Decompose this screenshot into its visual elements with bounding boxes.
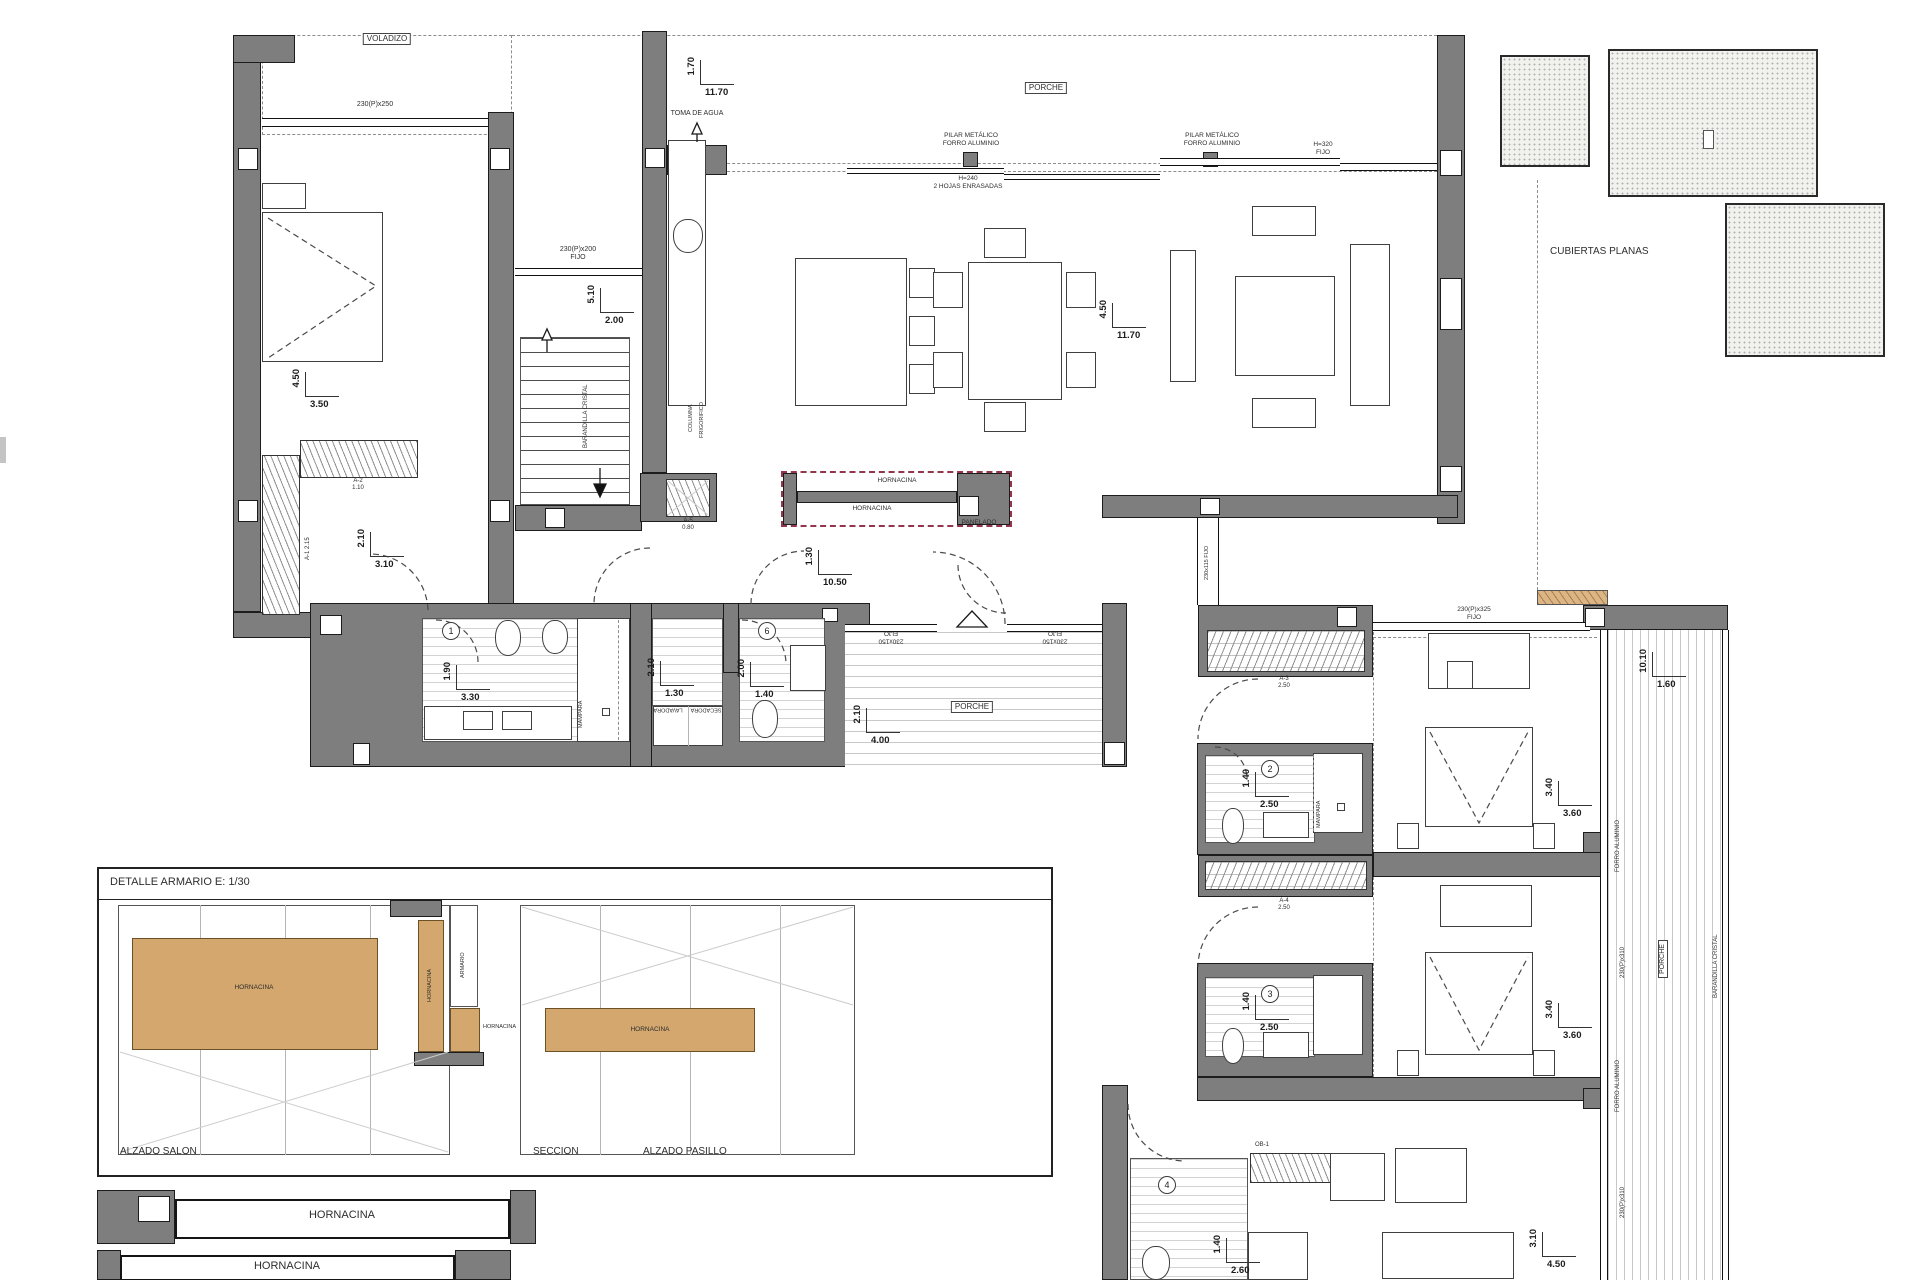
label-win-230p250: 230(P)x250 [357, 101, 393, 109]
label-hornacina-seccion-v: HORNACINA [427, 969, 434, 1002]
label-toma-de-agua: TOMA DE AGUA [671, 110, 724, 118]
room-number-2: 2 [1261, 760, 1279, 778]
label-win-h320: H=320 FIJO [1313, 141, 1332, 157]
label-pilar-metalico-2: PILAR METÁLICO FORRO ALUMINIO [1184, 132, 1240, 148]
label-forro-aluminio-2: FORRO ALUMINIO [1615, 1060, 1622, 1112]
dimension: 3.403.60 [1558, 1003, 1600, 1041]
label-frigorifico: FRIGORIFICO [699, 402, 706, 438]
dimension: 2.104.00 [866, 708, 908, 746]
label-detalle-titulo: DETALLE ARMARIO E: 1/30 [110, 876, 250, 889]
label-hornacina-plan-top: HORNACINA [877, 477, 916, 485]
label-hornacina-plan-bot: HORNACINA [852, 505, 891, 513]
dimension: 10.101.60 [1652, 652, 1694, 690]
label-armario-a1: A-1 2.15 [305, 537, 312, 560]
label-columna: COLUMNA [688, 404, 695, 432]
label-win-230x150-b: 230x150 FIJO [1043, 629, 1068, 645]
label-lavadora: LAVADORA [653, 706, 682, 713]
label-pilar-metalico-1: PILAR METÁLICO FORRO ALUMINIO [943, 132, 999, 148]
label-hornacina-bar2: HORNACINA [254, 1260, 320, 1273]
dimension: 1.3010.50 [818, 550, 860, 588]
label-win-230x115: 230x115 FIJO [1204, 546, 1211, 580]
dimension: 3.403.60 [1558, 781, 1600, 819]
label-panelado: PANELADO [962, 519, 997, 527]
label-hornacina-bar1: HORNACINA [309, 1209, 375, 1222]
label-hornacina-pasillo: HORNACINA [630, 1026, 669, 1034]
label-win-h240: H=240 2 HOJAS ENRASADAS [934, 175, 1003, 191]
label-win-230p325: 230(P)x325 FIJO [1457, 606, 1491, 622]
label-forro-aluminio-1: FORRO ALUMINIO [1615, 820, 1622, 872]
room-number-1: 1 [442, 622, 460, 640]
label-porche-top: PORCHE [1025, 82, 1067, 94]
label-hornacina-salon: HORNACINA [234, 984, 273, 992]
room-number-4: 4 [1158, 1176, 1176, 1194]
label-armario-a2: A-2 1.10 [352, 478, 364, 492]
floor-plan-sheet: VOLADIZO230(P)x250230(P)x200 FIJOTOMA DE… [0, 0, 1920, 1280]
dimension: 2.103.10 [370, 532, 412, 570]
annotation-layer: VOLADIZO230(P)x250230(P)x200 FIJOTOMA DE… [0, 0, 1920, 1280]
label-voladizo: VOLADIZO [363, 33, 411, 45]
label-armario-a4: A-4 2.50 [1278, 898, 1290, 912]
dimension: 5.102.00 [600, 288, 642, 326]
label-porche-terraza: PORCHE [1658, 940, 1668, 978]
label-mampara-1: MAMPARA [578, 701, 585, 728]
dimension: 1.903.30 [456, 665, 498, 703]
dimension: 2.001.40 [750, 662, 792, 700]
label-barandilla-terraza: BARANDILLA CRISTAL [1713, 934, 1720, 998]
label-seccion: SECCION [533, 1146, 579, 1158]
dimension: 1.402.60 [1226, 1238, 1268, 1276]
label-armario-seccion: ARMARIO [460, 952, 467, 978]
label-win-230x150-a: 230x150 FIJO [879, 629, 904, 645]
label-alzado-pasillo: ALZADO PASILLO [643, 1146, 727, 1158]
label-cubiertas-planas: CUBIERTAS PLANAS [1550, 246, 1649, 258]
label-win-230p310-b: 230(P)x310 [1620, 1187, 1627, 1218]
label-win-230p200: 230(P)x200 FIJO [560, 246, 596, 263]
dimension: 1.402.50 [1255, 772, 1297, 810]
label-mampara-2: MAMPARA [1316, 801, 1323, 828]
label-porche-centro: PORCHE [951, 701, 993, 713]
label-alzado-salon: ALZADO SALON [120, 1146, 197, 1158]
label-ob1: OB-1 [1255, 1142, 1269, 1149]
dimension: 4.5011.70 [1112, 303, 1154, 341]
label-win-230p310-a: 230(P)x310 [1620, 947, 1627, 978]
label-armario-a5: A-5 0.80 [682, 518, 694, 532]
room-number-3: 3 [1261, 985, 1279, 1003]
dimension: 4.503.50 [305, 372, 347, 410]
dimension: 1.7011.70 [700, 60, 742, 98]
dimension: 3.104.50 [1542, 1232, 1584, 1270]
label-armario-a3: A-3 2.50 [1278, 676, 1290, 690]
room-number-6: 6 [758, 622, 776, 640]
dimension: 2.101.30 [660, 661, 702, 699]
label-barandilla-escalera: BARANDILLA CRISTAL [583, 384, 590, 448]
label-secadora: SECADORA [691, 706, 722, 713]
label-hornacina-seccion-s: HORNACINA [483, 1024, 516, 1031]
